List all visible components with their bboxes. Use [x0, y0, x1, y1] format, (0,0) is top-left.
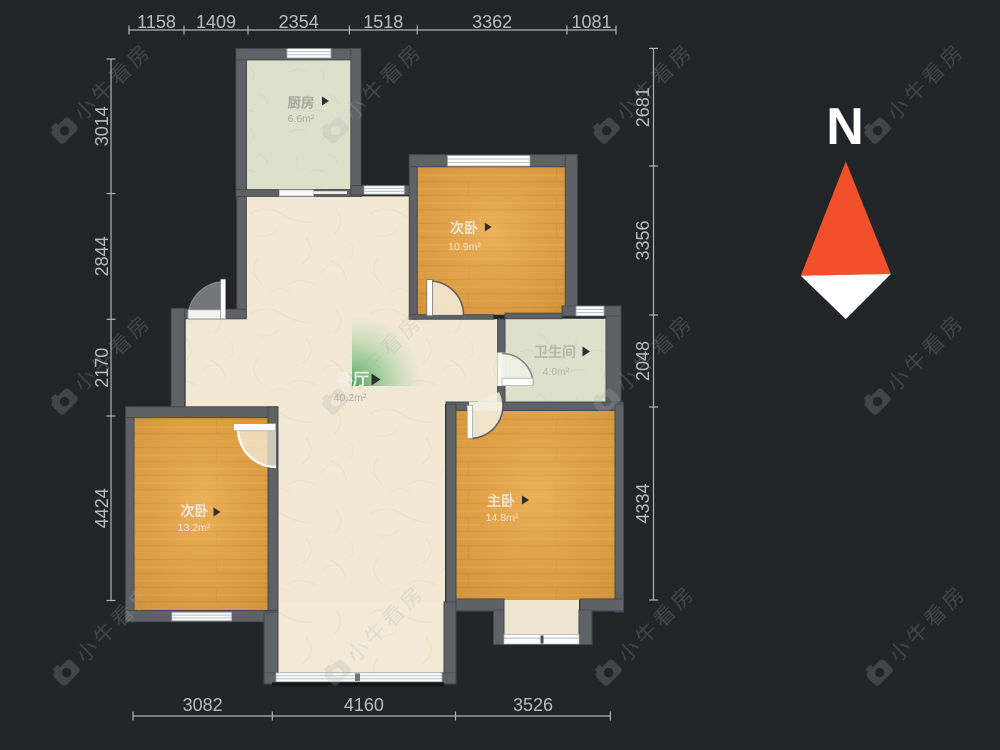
svg-text:14.8m²: 14.8m²: [486, 512, 519, 524]
svg-text:1409: 1409: [196, 12, 236, 32]
svg-text:10.9m²: 10.9m²: [448, 241, 481, 253]
svg-text:4424: 4424: [92, 488, 112, 528]
svg-text:2354: 2354: [279, 12, 319, 32]
svg-text:4160: 4160: [344, 695, 384, 715]
svg-text:卫生间: 卫生间: [534, 344, 576, 360]
svg-text:厨房: 厨房: [288, 95, 315, 111]
svg-text:13.2m²: 13.2m²: [178, 522, 211, 534]
svg-text:4334: 4334: [633, 483, 653, 523]
svg-text:2844: 2844: [92, 236, 112, 276]
svg-text:次卧: 次卧: [450, 220, 478, 236]
svg-text:N: N: [826, 98, 864, 156]
svg-text:3082: 3082: [183, 695, 223, 715]
svg-text:次卧: 次卧: [181, 503, 209, 519]
svg-text:6.6m²: 6.6m²: [288, 113, 315, 125]
svg-text:1158: 1158: [137, 12, 176, 32]
svg-text:主卧: 主卧: [487, 493, 515, 509]
svg-text:1081: 1081: [571, 12, 611, 32]
svg-text:1518: 1518: [363, 12, 403, 32]
svg-text:3362: 3362: [472, 12, 512, 32]
svg-text:3526: 3526: [513, 695, 553, 715]
svg-text:3356: 3356: [633, 220, 653, 260]
svg-text:4.0m²: 4.0m²: [543, 366, 570, 378]
